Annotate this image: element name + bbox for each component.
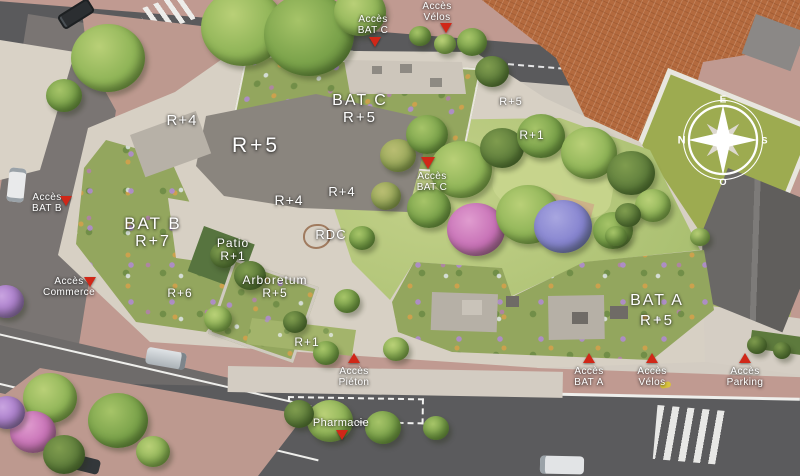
label-bat-c: BAT C R+5 bbox=[332, 92, 388, 127]
compass-letter-south: S bbox=[761, 136, 767, 146]
access-marker bbox=[369, 37, 381, 47]
access-pieton-south: Accès Piéton bbox=[339, 366, 370, 388]
bat-a-name: BAT A bbox=[630, 292, 684, 310]
arboretum-level: R+5 bbox=[242, 287, 307, 300]
tree bbox=[409, 26, 431, 46]
label-level-r4-center: R+4 bbox=[328, 185, 355, 200]
access-marker bbox=[336, 430, 348, 440]
tree bbox=[371, 182, 401, 210]
access-marker bbox=[421, 157, 435, 169]
label-bat-a: BAT A R+5 bbox=[630, 292, 684, 330]
tree bbox=[457, 28, 487, 56]
site-plan-aerial-view: E N S O BAT C R+5 BA bbox=[0, 0, 800, 476]
patio-level: R+1 bbox=[217, 250, 249, 263]
label-arboretum: Arboretum R+5 bbox=[242, 274, 307, 301]
tree bbox=[71, 24, 145, 92]
tree bbox=[283, 311, 307, 333]
bat-a-roof-equipment bbox=[506, 296, 519, 307]
access-marker bbox=[646, 353, 658, 363]
label-level-r5-central: R+5 bbox=[232, 134, 280, 158]
access-velos-south: Accès Vélos bbox=[637, 366, 666, 388]
compass-letter-west: O bbox=[719, 177, 726, 186]
crosswalk-southeast bbox=[653, 405, 727, 465]
tree bbox=[690, 228, 710, 246]
bat-c-level: R+5 bbox=[332, 110, 388, 127]
bat-c-name: BAT C bbox=[332, 92, 388, 110]
label-level-r4-nw: R+4 bbox=[167, 113, 198, 130]
tree bbox=[43, 435, 85, 474]
bat-c-roof-equipment bbox=[400, 64, 412, 73]
access-velos-north: Accès Vélos bbox=[422, 1, 451, 23]
access-bat-a-south: Accès BAT A bbox=[574, 366, 603, 388]
bat-a-roof-equipment bbox=[610, 306, 628, 319]
tree bbox=[383, 337, 409, 361]
bat-b-name: BAT B bbox=[124, 214, 182, 233]
compass-rose: E N S O bbox=[677, 94, 769, 186]
access-bat-b-west: Accès BAT B bbox=[32, 192, 62, 214]
access-marker bbox=[348, 353, 360, 363]
bat-c-roof-equipment bbox=[372, 66, 382, 74]
tree bbox=[423, 416, 449, 440]
tree bbox=[747, 336, 767, 354]
tree bbox=[349, 226, 375, 250]
access-marker bbox=[583, 353, 595, 363]
tree bbox=[607, 151, 655, 195]
access-marker bbox=[440, 23, 452, 33]
compass-letter-east: E bbox=[720, 94, 727, 105]
access-marker bbox=[60, 196, 72, 206]
bat-b-level: R+7 bbox=[124, 233, 182, 251]
car bbox=[540, 456, 584, 475]
tree bbox=[204, 306, 232, 332]
label-level-r5-east: R+5 bbox=[499, 96, 523, 108]
label-level-r6: R+6 bbox=[167, 287, 192, 300]
label-bat-b: BAT B R+7 bbox=[124, 214, 182, 251]
compass-letter-north: N bbox=[678, 135, 686, 147]
label-level-r1-east: R+1 bbox=[519, 129, 544, 142]
tree bbox=[434, 34, 456, 54]
access-parking-south: Accès Parking bbox=[727, 366, 764, 388]
access-marker bbox=[84, 277, 96, 287]
tree bbox=[773, 342, 791, 359]
label-level-rdc: RDC bbox=[315, 228, 346, 243]
tree bbox=[615, 203, 641, 227]
tree bbox=[605, 226, 627, 246]
tree bbox=[284, 400, 314, 428]
access-marker bbox=[739, 353, 751, 363]
tree bbox=[407, 188, 451, 228]
label-level-r1-south: R+1 bbox=[294, 336, 319, 349]
access-bat-c-north: Accès BAT C bbox=[358, 14, 389, 36]
access-bat-c-garden: Accès BAT C bbox=[417, 171, 448, 193]
label-level-r4-center-west: R+4 bbox=[274, 193, 303, 209]
tree bbox=[534, 200, 592, 253]
label-pharmacie: Pharmacie bbox=[313, 417, 369, 429]
tree bbox=[334, 289, 360, 313]
label-patio: Patio R+1 bbox=[217, 237, 249, 264]
car bbox=[6, 167, 26, 203]
bat-a-roof-equipment bbox=[572, 312, 588, 324]
bat-a-level: R+5 bbox=[630, 313, 684, 330]
bat-a-roof-skylight bbox=[462, 300, 482, 315]
bat-c-roof-equipment bbox=[430, 78, 442, 87]
